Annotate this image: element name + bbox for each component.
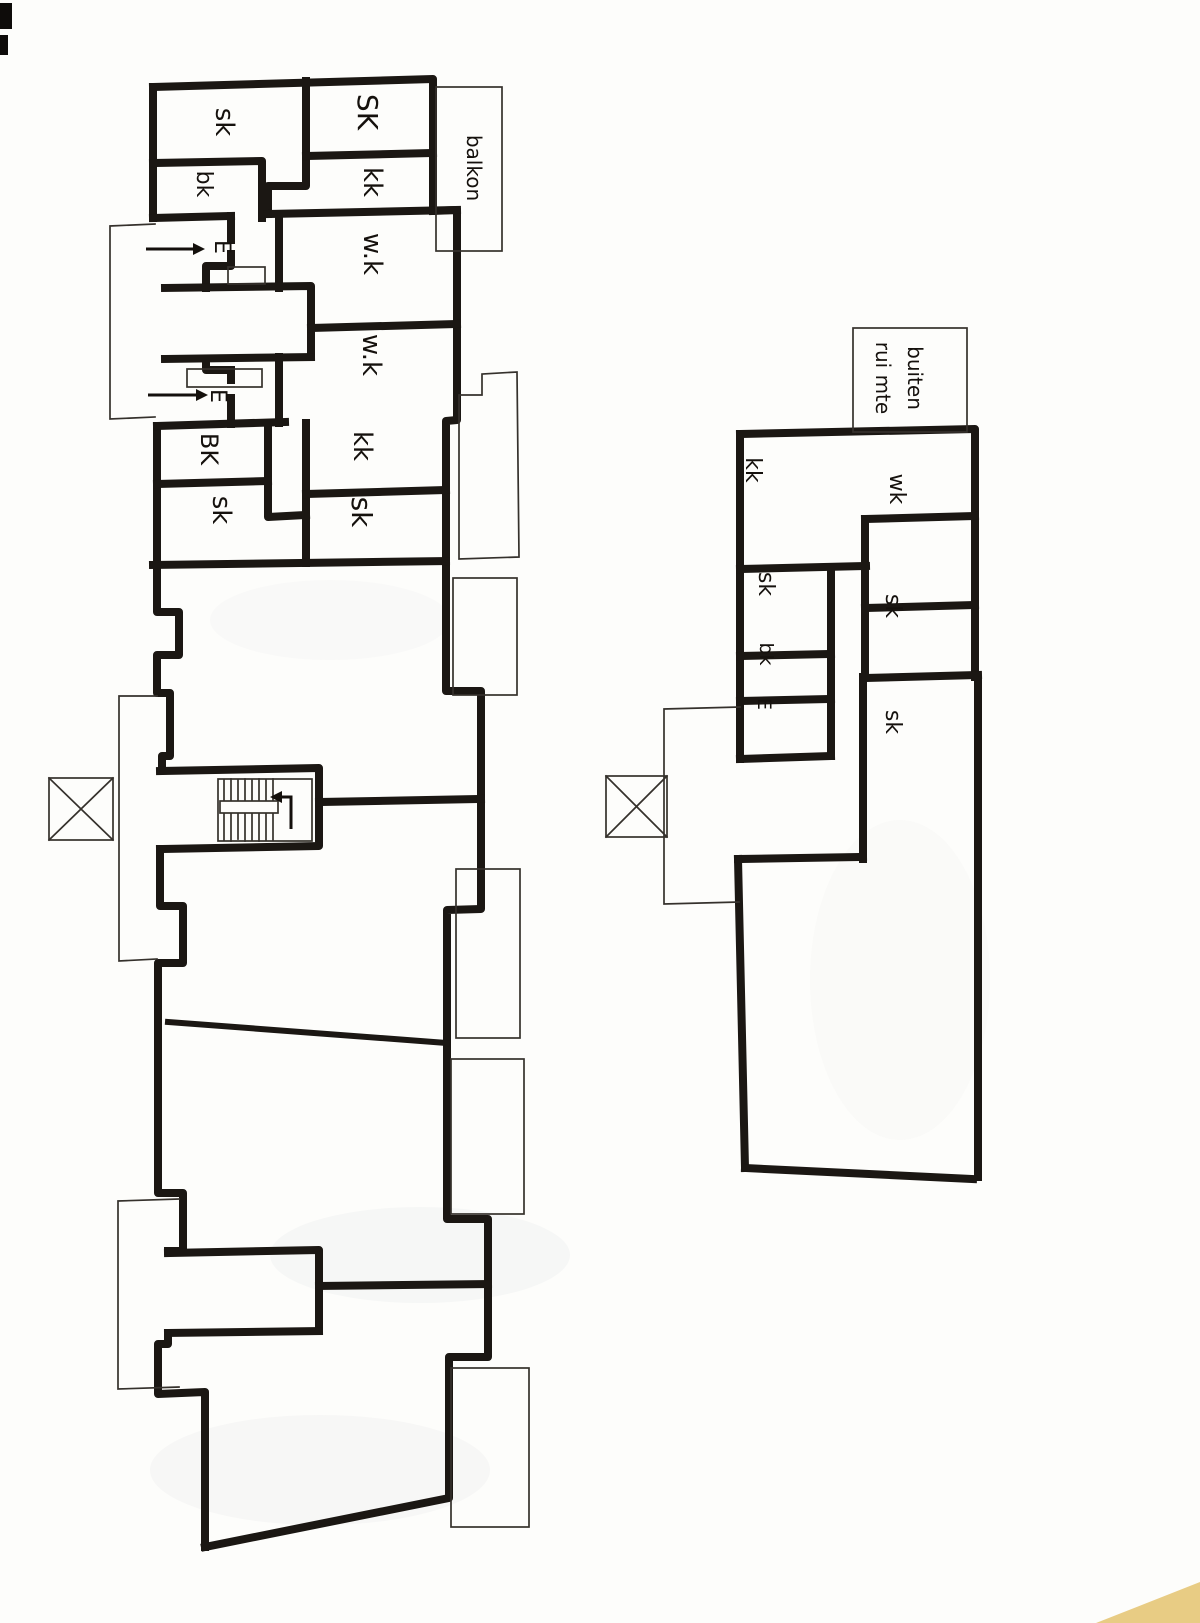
wall <box>738 859 745 1168</box>
corridor-wall <box>165 286 311 357</box>
wall <box>158 849 183 1251</box>
outdoor-label-line1: buiten <box>903 346 927 410</box>
entrance-arrow-icon <box>148 389 208 401</box>
gallery-walkway <box>664 707 740 904</box>
corridor-wall <box>319 1284 488 1286</box>
wall <box>205 210 488 1547</box>
wall <box>306 490 446 494</box>
balcony <box>456 869 520 1038</box>
wall <box>865 516 975 519</box>
gallery-walkway <box>110 224 155 419</box>
wall <box>740 566 866 569</box>
entrance-arrow-icon <box>146 243 205 255</box>
room-label-sk: sk <box>345 497 378 529</box>
arrow-head <box>193 243 205 255</box>
elevator-shaft-icon <box>49 778 113 840</box>
balcony <box>459 372 519 559</box>
entrance-bay-wall <box>168 1331 319 1333</box>
gallery-walkway <box>118 1199 179 1389</box>
landing-walkway <box>664 707 740 904</box>
wall <box>157 564 179 770</box>
smudge <box>210 580 450 660</box>
room-label-kk: kk <box>357 167 387 197</box>
gallery-walkway <box>119 696 157 961</box>
room-label-wk: wk <box>884 474 909 505</box>
corridor-wall <box>165 357 311 359</box>
wall <box>268 81 306 214</box>
wall <box>153 216 231 218</box>
wall <box>738 857 863 859</box>
room-label-balkon: balkon <box>462 135 486 201</box>
room-label-sk: sk <box>880 594 905 618</box>
room-label-wk: w.k <box>356 334 386 376</box>
elevator-cross <box>606 776 667 837</box>
outdoor-label-line2: rui mte <box>871 342 895 414</box>
door-porch <box>228 267 265 284</box>
room-label-wk: w.k <box>357 233 387 275</box>
entrance-arrows <box>146 243 208 401</box>
room-label-entrance: E <box>209 240 234 254</box>
wall <box>168 1022 447 1043</box>
wall <box>153 561 446 565</box>
interior-walls <box>740 516 975 859</box>
room-label-sk: sk <box>880 710 905 734</box>
wall <box>740 756 831 759</box>
arrow-shaft <box>282 797 291 829</box>
room-label-bk: bk <box>755 642 777 665</box>
balcony <box>453 578 517 695</box>
wall <box>306 153 433 156</box>
room-label-BK: BK <box>195 433 223 466</box>
scan-artifact <box>0 3 12 29</box>
scanned-floorplan-page: sk bk SK kk balkon E w.k w.k E BK kk sk … <box>0 0 1200 1623</box>
balcony <box>451 1059 524 1214</box>
corridor-wall <box>319 799 481 802</box>
building-left <box>49 79 529 1547</box>
stair-landing <box>220 801 278 813</box>
smudge <box>810 820 990 1140</box>
elevator-cross <box>49 778 113 840</box>
scan-background-corner <box>1096 1582 1200 1623</box>
wall <box>311 324 457 328</box>
interior-walls <box>153 81 488 1286</box>
wall <box>865 675 978 678</box>
room-label-sk: sk <box>206 496 236 525</box>
wall <box>268 481 306 517</box>
exterior-walls <box>153 79 488 1547</box>
floorplan-drawing: sk bk SK kk balkon E w.k w.k E BK kk sk … <box>0 0 1200 1623</box>
room-label-kk: kk <box>740 457 765 483</box>
wall <box>157 481 268 484</box>
wall <box>740 654 831 656</box>
elevator-shaft-icon <box>606 776 667 837</box>
room-label-SK: SK <box>351 94 384 131</box>
room-label-entrance: E <box>753 698 775 710</box>
room-label-sk: sk <box>209 108 239 137</box>
room-label-sk: sk <box>753 572 778 596</box>
wall <box>740 429 975 677</box>
wall <box>268 210 457 214</box>
scan-artifacts <box>0 3 1200 1623</box>
room-label-bk: bk <box>191 171 216 198</box>
room-label-kk: kk <box>347 431 377 461</box>
room-label-entrance: E <box>205 389 230 403</box>
wall <box>745 1168 973 1179</box>
stairwell <box>218 779 312 841</box>
scan-artifact <box>0 35 8 55</box>
